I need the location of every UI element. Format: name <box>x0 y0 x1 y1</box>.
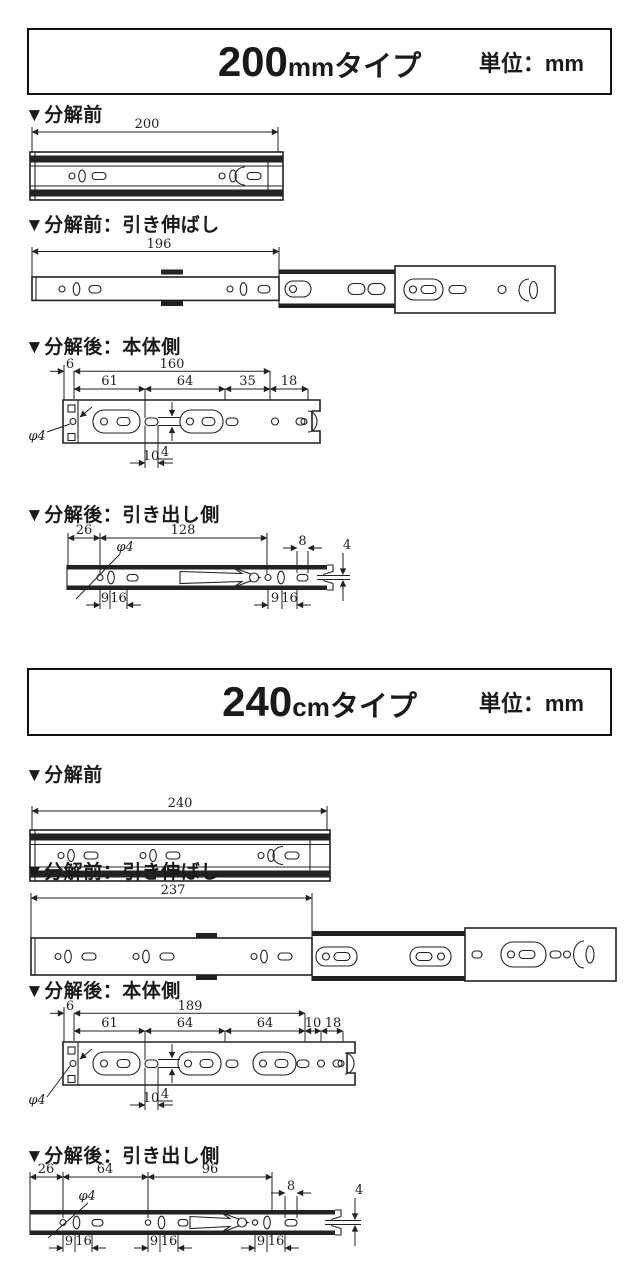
dim-hole-dia: φ4 <box>28 429 45 444</box>
dim-end-slot-w: 8 <box>287 1179 295 1194</box>
figure-drawer-240: 26 64 96 φ4 8 4 <box>20 1160 375 1260</box>
figure-extended-200: 196 <box>25 235 560 320</box>
dim-g1-b: 16 <box>75 1234 92 1249</box>
figure-label-extended-240: ▼分解前：引き伸ばし <box>25 857 220 884</box>
dim-g1-a: 9 <box>65 1234 73 1249</box>
dim-hole-dia: φ4 <box>78 1189 95 1204</box>
bottom-dimensions: 9 16 9 16 <box>86 590 311 609</box>
dim-g2-b: 16 <box>161 1234 178 1249</box>
dim-p5: 18 <box>325 1016 342 1031</box>
unit-label: 単位：mm <box>479 686 584 718</box>
dim-total: 196 <box>147 237 172 252</box>
dim-g1-a: 9 <box>101 591 109 606</box>
dim-hole-dia: φ4 <box>116 540 133 555</box>
dim-p1: 61 <box>101 374 118 389</box>
extended-rail-drawing <box>31 928 616 981</box>
figure-label-body-240: ▼分解後：本体側 <box>25 976 181 1003</box>
dim-end-slot-w: 8 <box>298 534 306 549</box>
figure-label-extended-200: ▼分解前：引き伸ばし <box>25 210 220 237</box>
dim-end-gap: 4 <box>355 1183 363 1198</box>
type-header-200: 200mmタイプ 単位：mm <box>27 28 612 95</box>
type-number: 240 <box>222 678 292 725</box>
dim-slot-h: 4 <box>161 445 169 460</box>
unit-label: 単位：mm <box>479 46 584 78</box>
dim-slot-w: 10 <box>143 1091 160 1106</box>
dim-total: 237 <box>161 883 186 898</box>
drawer-rail-drawing <box>30 1210 361 1235</box>
dim-p4: 10 <box>305 1016 322 1031</box>
dimension-rows: 6 160 61 64 35 18 <box>50 357 308 418</box>
type-header-240: 240cmタイプ 単位：mm <box>27 668 612 736</box>
dim-lead: 26 <box>38 1162 55 1177</box>
hole-diameter-callout: φ4 <box>28 1049 92 1108</box>
dim-g2-a: 9 <box>150 1234 158 1249</box>
dim-total: 189 <box>178 999 203 1014</box>
dim-g1-b: 16 <box>110 591 127 606</box>
type-number: 200 <box>218 38 288 85</box>
dim-g2-a: 9 <box>271 591 279 606</box>
dim-g2-b: 16 <box>281 591 298 606</box>
dim-s2: 96 <box>202 1162 219 1177</box>
hole-diameter-callout: φ4 <box>28 407 92 444</box>
type-number-unit: mm <box>288 52 334 82</box>
dim-g3-b: 16 <box>268 1234 285 1249</box>
bottom-dimensions: 9 16 9 16 9 16 <box>49 1234 299 1252</box>
dim-span: 128 <box>171 523 196 538</box>
dim-end-gap: 4 <box>343 538 351 553</box>
body-rail-drawing <box>63 1042 355 1085</box>
dimension-240-total: 240 <box>32 796 327 830</box>
dim-edge: 6 <box>66 999 74 1014</box>
dim-s1: 64 <box>97 1162 114 1177</box>
dim-p3: 64 <box>257 1016 274 1031</box>
slot-dimensions: 10 4 <box>130 1044 180 1110</box>
type-number-unit: cm <box>292 692 330 722</box>
figure-closed-200: 200 <box>25 110 325 210</box>
dim-slot-w: 10 <box>143 449 160 464</box>
type-title-240: 240cmタイプ <box>222 678 417 726</box>
dim-edge: 6 <box>66 357 74 372</box>
slot-dimensions: 10 4 <box>130 402 180 468</box>
figure-extended-240: 237 <box>20 885 640 985</box>
dim-total: 240 <box>168 796 193 811</box>
dimension-200-total: 200 <box>32 117 278 152</box>
dim-p2: 64 <box>177 374 194 389</box>
dim-p1: 61 <box>101 1016 118 1031</box>
dim-p3: 35 <box>239 374 256 389</box>
type-suffix: タイプ <box>334 51 421 83</box>
dim-slot-h: 4 <box>161 1087 169 1102</box>
figure-body-240: 6 189 61 64 64 10 18 <box>20 1000 375 1125</box>
dim-total: 200 <box>135 117 160 132</box>
extended-rail-drawing <box>32 266 555 313</box>
dimension-196: 196 <box>32 237 279 277</box>
slide-rail-spec-sheet: 200mmタイプ 単位：mm ▼分解前 200 ▼分解前：引き伸ばし 196 <box>0 0 640 1280</box>
figure-label-closed-240: ▼分解前 <box>25 760 103 787</box>
dimension-237: 237 <box>31 883 312 938</box>
dim-p2: 64 <box>177 1016 194 1031</box>
figure-body-200: 6 160 61 64 35 18 φ4 <box>20 358 340 483</box>
dim-total: 160 <box>160 357 185 372</box>
closed-rail-drawing <box>30 152 283 200</box>
dimension-rows: 26 64 96 <box>30 1162 272 1218</box>
figure-label-body-200: ▼分解後：本体側 <box>25 332 181 359</box>
figure-drawer-200: 26 128 φ4 8 4 9 16 <box>20 525 360 620</box>
dim-p4: 18 <box>281 374 298 389</box>
dim-g3-a: 9 <box>257 1234 265 1249</box>
dimension-rows: 6 189 61 64 64 10 18 <box>50 999 343 1060</box>
type-title-200: 200mmタイプ <box>218 38 421 86</box>
body-rail-drawing <box>63 400 320 443</box>
type-suffix: タイプ <box>330 691 417 723</box>
dim-hole-dia: φ4 <box>28 1093 45 1108</box>
dim-lead: 26 <box>76 523 93 538</box>
